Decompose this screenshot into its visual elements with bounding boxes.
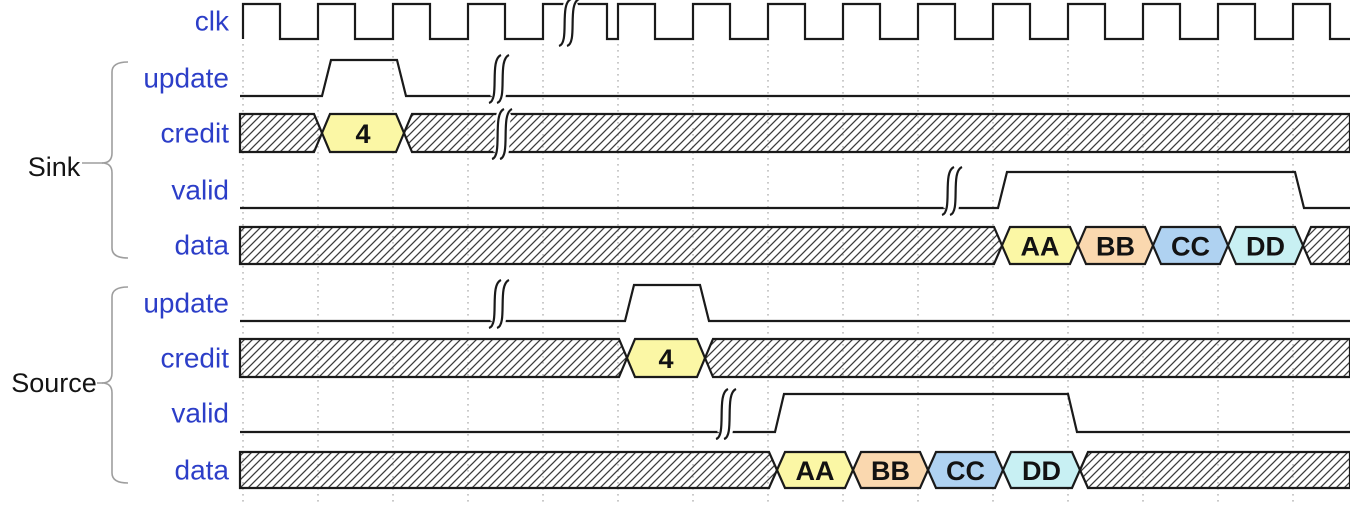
wave-source-data: AABBCCDD bbox=[240, 452, 1350, 488]
bus-value-text: CC bbox=[946, 456, 985, 486]
group-label-sink: Sink bbox=[28, 152, 81, 182]
wave-sink-credit: 4 bbox=[240, 109, 1350, 159]
timing-diagram-canvas: 4AABBCCDD4AABBCCDD clk update credit val… bbox=[0, 0, 1350, 516]
signal-label-source-update: update bbox=[143, 288, 229, 319]
bus-invalid-region bbox=[705, 339, 1350, 377]
timing-diagram: 4AABBCCDD4AABBCCDD clk update credit val… bbox=[0, 0, 1350, 516]
bus-invalid-region bbox=[240, 114, 322, 152]
signal-label-sink-data: data bbox=[175, 230, 230, 261]
wave-source-valid bbox=[240, 389, 1350, 439]
signal-label-source-data: data bbox=[175, 455, 230, 486]
bus-invalid-region bbox=[1303, 227, 1350, 264]
bus-value-text: 4 bbox=[355, 119, 370, 149]
wave-sink-valid bbox=[240, 167, 1350, 215]
bus-invalid-region bbox=[240, 339, 627, 377]
bus-value-text: BB bbox=[1096, 232, 1135, 262]
signal-label-sink-update: update bbox=[143, 63, 229, 94]
group-label-source: Source bbox=[11, 368, 97, 398]
bus-value-text: AA bbox=[796, 456, 835, 486]
wave-sink-update bbox=[240, 55, 1350, 103]
bus-invalid-region bbox=[240, 227, 1002, 264]
bus-value-text: BB bbox=[871, 456, 910, 486]
waveforms: 4AABBCCDD4AABBCCDD bbox=[240, 0, 1350, 488]
signal-label-clk: clk bbox=[195, 6, 230, 37]
signal-label-source-valid: valid bbox=[171, 398, 229, 429]
bus-invalid-region bbox=[404, 114, 1350, 152]
bus-value-text: CC bbox=[1171, 232, 1210, 262]
wave-sink-data: AABBCCDD bbox=[240, 227, 1350, 264]
signal-label-sink-credit: credit bbox=[161, 118, 230, 149]
bus-value-text: DD bbox=[1022, 456, 1061, 486]
bus-invalid-region bbox=[1080, 452, 1350, 488]
bus-invalid-region bbox=[240, 452, 777, 488]
signal-label-sink-valid: valid bbox=[171, 175, 229, 206]
bus-value-text: DD bbox=[1246, 232, 1285, 262]
wave-source-credit: 4 bbox=[240, 339, 1350, 377]
bus-value-text: 4 bbox=[658, 344, 673, 374]
signal-label-source-credit: credit bbox=[161, 343, 230, 374]
group-braces bbox=[82, 62, 128, 483]
bus-value-text: AA bbox=[1021, 232, 1060, 262]
wave-source-update bbox=[240, 280, 1350, 328]
wave-clk bbox=[243, 0, 1350, 46]
